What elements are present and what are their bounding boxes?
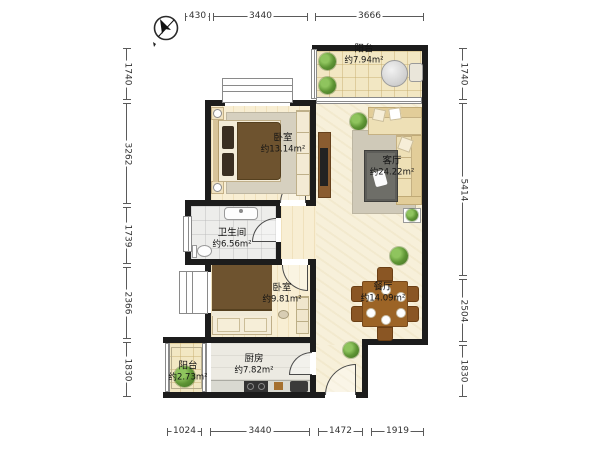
door-leaf bbox=[252, 241, 276, 242]
plant-icon bbox=[343, 342, 359, 358]
wall bbox=[310, 100, 316, 206]
tv-icon bbox=[320, 148, 328, 186]
wall bbox=[308, 259, 316, 265]
dimension-left-1: 1740 bbox=[126, 48, 127, 100]
balcony-top-side-window bbox=[311, 49, 317, 99]
dimension-bottom-3: 1472 bbox=[318, 431, 363, 432]
wall bbox=[362, 345, 368, 398]
door-leaf bbox=[289, 374, 312, 375]
chair-icon bbox=[377, 327, 393, 341]
chair-icon bbox=[377, 267, 393, 281]
balcony-sliding-door bbox=[316, 97, 422, 104]
faucet-icon bbox=[239, 209, 243, 213]
burner-icon bbox=[258, 383, 265, 390]
wall bbox=[276, 206, 281, 218]
corridor-floor bbox=[281, 206, 316, 259]
plate-icon bbox=[366, 308, 376, 318]
pillow-icon bbox=[222, 153, 234, 176]
wall bbox=[356, 392, 368, 398]
room-label-bedroom-main: 卧室 约13.14m² bbox=[261, 132, 306, 155]
room-label-balcony-bottom: 阳台 约2.73m² bbox=[168, 360, 207, 383]
lamp-icon bbox=[213, 183, 222, 192]
dimension-bottom-1: 1024 bbox=[167, 431, 202, 432]
wall bbox=[310, 343, 316, 352]
pillow-icon bbox=[244, 318, 267, 332]
burner-icon bbox=[247, 383, 254, 390]
chair-icon bbox=[407, 306, 419, 322]
kitchen-sink-icon bbox=[290, 381, 308, 392]
wall bbox=[205, 313, 211, 337]
dimension-left-4: 2366 bbox=[126, 267, 127, 339]
wall bbox=[185, 250, 191, 265]
dimension-bottom-2: 3440 bbox=[210, 431, 310, 432]
dimension-right-1: 1740 bbox=[462, 48, 463, 100]
wall bbox=[422, 45, 428, 345]
bay-window bbox=[222, 78, 293, 103]
dimension-left-3: 1739 bbox=[126, 207, 127, 264]
pillow-icon bbox=[388, 107, 402, 121]
washing-machine-icon bbox=[381, 60, 408, 87]
wall bbox=[310, 265, 316, 343]
wall bbox=[185, 200, 280, 206]
bathroom-window bbox=[183, 216, 192, 252]
bay-window bbox=[179, 271, 208, 314]
plant-icon bbox=[319, 77, 336, 94]
dimension-top-3: 3666 bbox=[315, 16, 424, 17]
chair-icon bbox=[407, 286, 419, 302]
pillow-icon bbox=[222, 126, 234, 149]
wall bbox=[163, 337, 316, 343]
laundry-basket-icon bbox=[409, 63, 423, 82]
plant-icon bbox=[406, 209, 418, 221]
room-label-living: 客厅 约24.22m² bbox=[370, 155, 415, 178]
floor-plan: 阳台 约7.94m² 卧室 约13.14m² 客厅 约24.22m² 卫生间 约… bbox=[0, 0, 600, 450]
wall bbox=[362, 339, 428, 345]
room-label-balcony-top: 阳台 约7.94m² bbox=[344, 43, 383, 66]
plant-icon bbox=[390, 247, 408, 265]
plant-icon bbox=[350, 113, 367, 130]
pillow-icon bbox=[217, 318, 240, 332]
room-label-bathroom: 卫生间 约6.56m² bbox=[212, 227, 251, 250]
pillow-icon bbox=[372, 108, 386, 122]
toilet-icon bbox=[197, 245, 212, 257]
room-label-dining: 餐厅 约14.09m² bbox=[361, 281, 406, 304]
dimension-bottom-4: 1919 bbox=[371, 431, 424, 432]
dimension-right-4: 1830 bbox=[462, 345, 463, 397]
headboard bbox=[213, 120, 219, 182]
dimension-right-2: 5414 bbox=[462, 103, 463, 276]
cutting-board-icon bbox=[274, 382, 283, 390]
stool-icon bbox=[278, 310, 289, 319]
wall bbox=[163, 392, 325, 398]
sofa-armrest bbox=[396, 196, 422, 205]
door-leaf bbox=[355, 364, 356, 395]
lamp-icon bbox=[213, 109, 222, 118]
wall bbox=[310, 375, 316, 392]
door-leaf bbox=[307, 265, 308, 291]
dimension-top-1: 430 bbox=[185, 16, 210, 17]
dimension-top-2: 3440 bbox=[213, 16, 308, 17]
compass-icon bbox=[146, 6, 188, 50]
room-label-bedroom-second: 卧室 约9.81m² bbox=[262, 282, 301, 305]
room-label-kitchen: 厨房 约7.82m² bbox=[234, 353, 273, 376]
plate-icon bbox=[381, 315, 391, 325]
plant-icon bbox=[319, 53, 336, 70]
dimension-left-2: 3262 bbox=[126, 103, 127, 204]
plate-icon bbox=[396, 308, 406, 318]
dimension-right-3: 2504 bbox=[462, 279, 463, 342]
wall bbox=[276, 242, 281, 259]
dimension-left-5: 1830 bbox=[126, 342, 127, 397]
sheet-fold bbox=[212, 311, 272, 316]
